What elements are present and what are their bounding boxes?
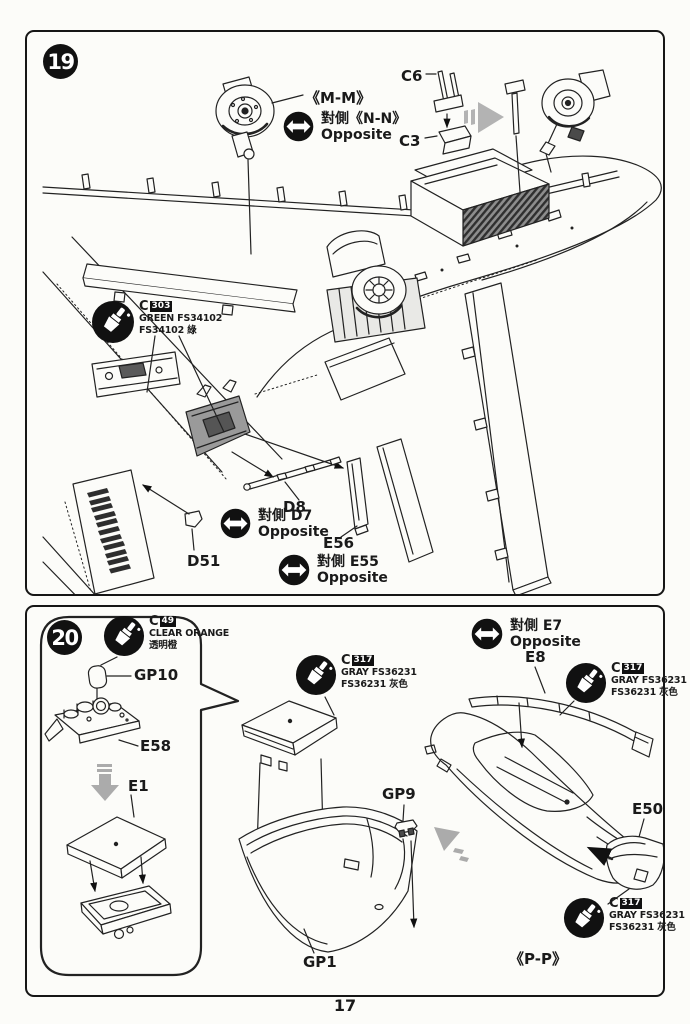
label-view-pp: 《P-P》 bbox=[509, 951, 567, 967]
paint-code: C317 bbox=[341, 654, 417, 667]
paint-brand: C bbox=[149, 615, 159, 628]
paint-callout-text: C317 GRAY FS36231 FS36231 灰色 bbox=[341, 654, 417, 690]
paint-name-cn: FS34102 綠 bbox=[139, 325, 222, 337]
step-20-badge: 20 bbox=[47, 620, 82, 655]
paint-name-cn: 透明橙 bbox=[149, 640, 229, 652]
paint-brand: C bbox=[341, 654, 351, 667]
label-part-gp9: GP9 bbox=[382, 786, 416, 802]
paint-name-en: GRAY FS36231 bbox=[341, 667, 417, 679]
paint-callout-text: C317 GRAY FS36231 FS36231 灰色 bbox=[611, 662, 687, 698]
paint-number: 317 bbox=[352, 655, 375, 666]
label-part-e8: E8 bbox=[525, 649, 546, 665]
paint-name-en: CLEAR ORANGE bbox=[149, 628, 229, 640]
opposite-callout-text: 對側《N-N》 Opposite bbox=[321, 111, 406, 143]
step-20-number: 20 bbox=[51, 626, 77, 650]
opposite-cn: 對側 E7 bbox=[510, 618, 581, 634]
opposite-callout-text: 對側 E55 Opposite bbox=[317, 554, 388, 586]
label-part-e1: E1 bbox=[128, 778, 149, 794]
opposite-callout-text: 對側 E7 Opposite bbox=[510, 618, 581, 650]
paint-name-cn: FS36231 灰色 bbox=[341, 679, 417, 691]
opposite-cn: 對側《N-N》 bbox=[321, 111, 406, 127]
paint-brush-icon bbox=[295, 654, 337, 700]
paint-name-cn: FS36231 灰色 bbox=[609, 922, 685, 934]
paint-brand: C bbox=[611, 662, 621, 675]
paint-brush-icon bbox=[103, 615, 145, 661]
paint-number: 317 bbox=[622, 663, 645, 674]
paint-code: C317 bbox=[609, 897, 685, 910]
label-part-c6: C6 bbox=[401, 68, 422, 84]
step-19-panel: 19 《M-M》 對側《N-N》 Opposite C6 C3 C303 bbox=[25, 30, 665, 596]
label-part-e56: E56 bbox=[323, 535, 354, 551]
paint-callout-gray-right: C317 GRAY FS36231 FS36231 灰色 bbox=[565, 662, 687, 708]
label-part-gp1: GP1 bbox=[303, 954, 337, 970]
paint-callout-text: C49 CLEAR ORANGE 透明橙 bbox=[149, 615, 229, 651]
step-20-panel: 20 C49 CLEAR ORANGE 透明橙 GP10 E58 E1 bbox=[25, 605, 665, 997]
label-part-d51: D51 bbox=[187, 553, 220, 569]
opposite-arrow-icon bbox=[220, 508, 251, 543]
paint-brush-icon bbox=[565, 662, 607, 708]
paint-name-en: GRAY FS36231 bbox=[609, 910, 685, 922]
opposite-callout-e55: 對側 E55 Opposite bbox=[278, 554, 388, 590]
paint-number: 303 bbox=[150, 301, 173, 312]
opposite-arrow-icon bbox=[471, 618, 503, 654]
opposite-arrow-icon bbox=[278, 554, 310, 590]
page-number: 17 bbox=[0, 996, 690, 1015]
paint-callout-gray-bottom: C317 GRAY FS36231 FS36231 灰色 bbox=[563, 897, 685, 943]
label-view-mm: 《M-M》 bbox=[305, 90, 371, 106]
paint-code: C317 bbox=[611, 662, 687, 675]
opposite-en: Opposite bbox=[258, 524, 329, 540]
paint-brush-icon bbox=[563, 897, 605, 943]
instruction-page: 19 《M-M》 對側《N-N》 Opposite C6 C3 C303 bbox=[0, 0, 690, 1024]
opposite-en: Opposite bbox=[317, 570, 388, 586]
opposite-callout-d7: 對側 D7 Opposite bbox=[220, 508, 329, 543]
label-part-c3: C3 bbox=[399, 133, 420, 149]
paint-callout-green: C303 GREEN FS34102 FS34102 綠 bbox=[91, 300, 222, 348]
paint-number: 49 bbox=[160, 616, 177, 627]
label-part-e50: E50 bbox=[632, 801, 663, 817]
opposite-en: Opposite bbox=[321, 127, 406, 143]
paint-name-en: GREEN FS34102 bbox=[139, 313, 222, 325]
paint-code: C49 bbox=[149, 615, 229, 628]
paint-callout-text: C303 GREEN FS34102 FS34102 綠 bbox=[139, 300, 222, 336]
opposite-cn: 對側 E55 bbox=[317, 554, 388, 570]
label-part-gp10: GP10 bbox=[134, 667, 178, 683]
paint-name-cn: FS36231 灰色 bbox=[611, 687, 687, 699]
opposite-cn: 對側 D7 bbox=[258, 508, 329, 524]
step-19-number: 19 bbox=[47, 50, 73, 74]
paint-brand: C bbox=[609, 897, 619, 910]
paint-callout-text: C317 GRAY FS36231 FS36231 灰色 bbox=[609, 897, 685, 933]
paint-callout-clear-orange: C49 CLEAR ORANGE 透明橙 bbox=[103, 615, 229, 661]
paint-brush-icon bbox=[91, 300, 135, 348]
paint-code: C303 bbox=[139, 300, 222, 313]
opposite-arrow-icon bbox=[283, 111, 314, 146]
paint-name-en: GRAY FS36231 bbox=[611, 675, 687, 687]
paint-number: 317 bbox=[620, 898, 643, 909]
opposite-callout-text: 對側 D7 Opposite bbox=[258, 508, 329, 540]
step-19-badge: 19 bbox=[43, 44, 78, 79]
opposite-callout-nn: 對側《N-N》 Opposite bbox=[283, 111, 406, 146]
paint-callout-gray-mid: C317 GRAY FS36231 FS36231 灰色 bbox=[295, 654, 417, 700]
label-part-e58: E58 bbox=[140, 738, 171, 754]
paint-brand: C bbox=[139, 300, 149, 313]
